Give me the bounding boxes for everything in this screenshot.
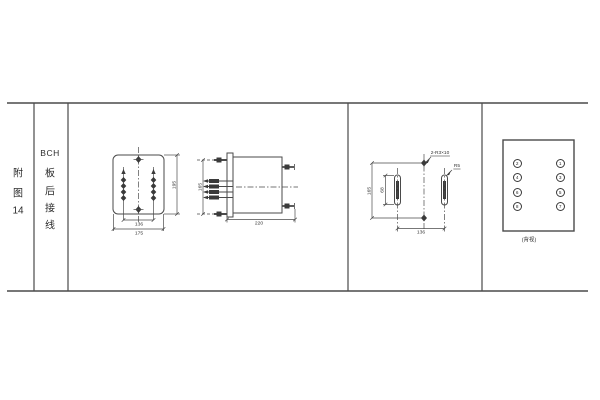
panel-slot-right [442,168,448,232]
terminal-column-left [121,167,127,220]
terminal-6-number: 6 [516,190,518,195]
dim-drill-height: 165 [366,186,372,194]
dim-front-height: 195 [171,180,177,188]
terminal-4-number: 4 [516,175,518,180]
terminal-2: 2 [513,159,522,168]
terminal-3: 3 [556,173,565,182]
terminal-6: 6 [513,188,522,197]
slot-callout-label: R5 [453,163,460,170]
figure-label-char-2: 图 [13,185,23,200]
terminal-4: 4 [513,173,522,182]
figure-label-char-1: 附 [13,165,23,180]
category-label-char-3: 接 [45,200,55,215]
terminal-2-number: 2 [516,161,518,166]
dim-front-outer-width: 175 [134,230,142,236]
side-view-drawing [197,153,298,223]
category-label-char-1: 板 [45,165,55,180]
terminal-7-number: 7 [559,204,561,209]
mounting-hole-symbol-top [134,156,144,163]
slot-callout-leader [446,170,452,176]
rear-stud-bottom [282,203,295,209]
terminal-5: 5 [556,188,565,197]
terminal-8: 8 [513,202,522,211]
terminal-7: 7 [556,202,565,211]
terminal-5-number: 5 [559,190,561,195]
figure-sheet: 附 图 14 BCH 板 后 接 线 136 175 195 165 220 1… [0,0,600,400]
drawing-linework [0,0,600,400]
panel-stud-bottom [214,212,227,217]
front-view-drawing [112,147,180,231]
terminal-3-number: 3 [559,175,561,180]
figure-label-number: 14 [12,206,23,217]
panel-slot-left [395,168,401,232]
table-grid [7,103,588,291]
holes-callout-label: 2-R3×10 [430,149,450,156]
rear-view-caption: (背视) [522,236,537,243]
category-label-bch: BCH [40,148,59,158]
rear-view-drawing [503,140,574,231]
dim-front-inner-width: 136 [134,221,142,227]
drilling-plan-drawing [370,154,452,232]
terminal-column-right [151,167,157,220]
rear-stud-top [282,164,295,170]
panel-stud-top [214,158,227,163]
category-label-char-4: 线 [45,217,55,232]
drill-hole-symbol-bottom [421,215,427,222]
terminal-1-number: 1 [559,161,561,166]
dim-slot-length: 68 [379,187,385,193]
terminal-8-number: 8 [516,204,518,209]
mounting-hole-symbol-bottom [134,206,144,213]
terminal-pins [203,179,233,200]
terminal-1: 1 [556,159,565,168]
dim-drill-width: 136 [417,229,425,235]
category-label-char-2: 后 [45,183,55,198]
dim-side-depth: 220 [255,220,263,226]
dim-side-stud-spacing: 165 [197,183,203,191]
